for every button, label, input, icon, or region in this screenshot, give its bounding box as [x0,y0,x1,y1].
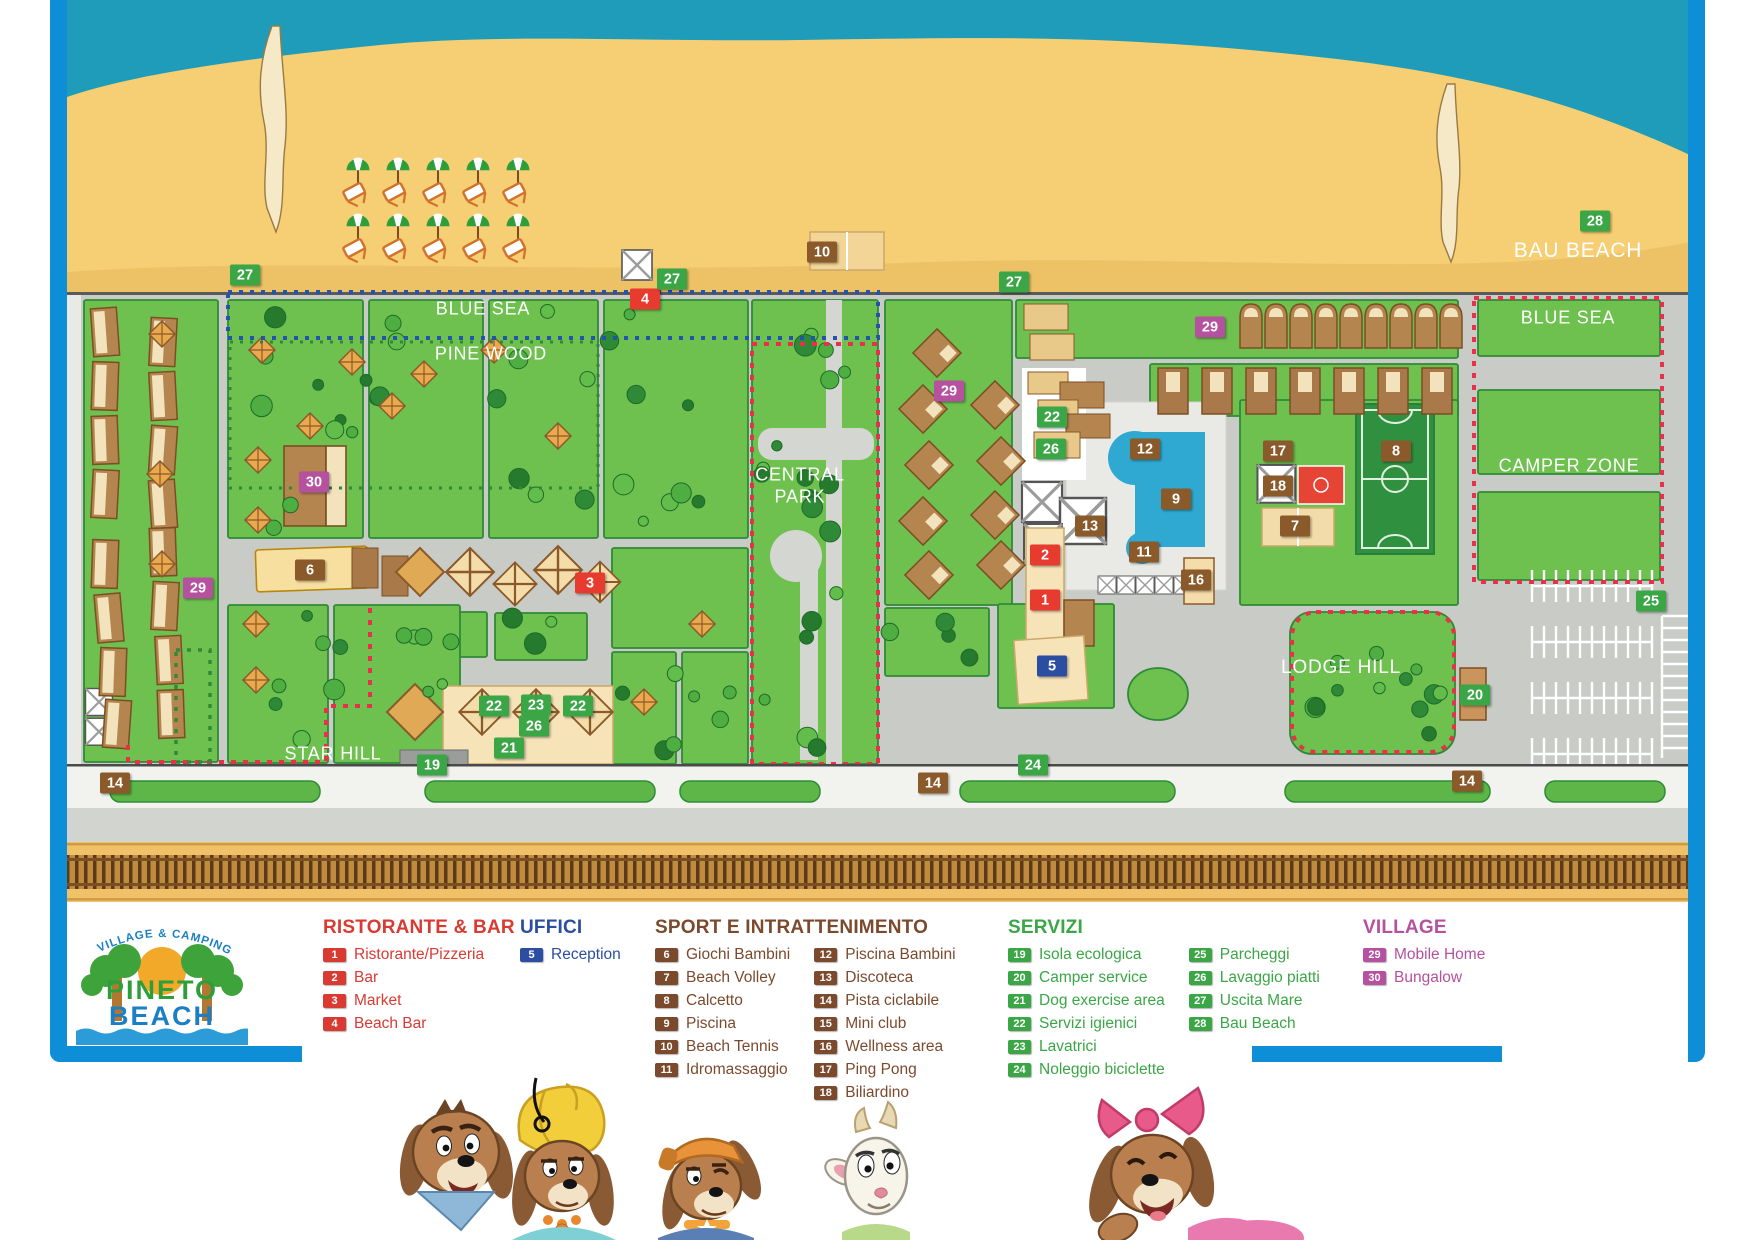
legend-badge-29: 29 [1363,948,1386,962]
legend-item-12: 12Piscina Bambini [814,946,955,964]
legend-item-30: 30Bungalow [1363,969,1485,987]
legend-title: UFFICI [520,917,621,939]
legend-item-5: 5Reception [520,946,621,964]
legend-label: Bungalow [1394,969,1462,987]
legend-title: VILLAGE [1363,917,1485,939]
legend-badge-3: 3 [323,994,346,1008]
mascot-dog-wig [508,1078,618,1240]
legend-title: RISTORANTE & BAR [323,917,515,939]
legend-label: Uscita Mare [1220,992,1303,1010]
legend-badge-30: 30 [1363,971,1386,985]
legend-item-27: 27Uscita Mare [1189,992,1320,1010]
legend-label: Lavaggio piatti [1220,969,1320,987]
legend-item-19: 19Isola ecologica [1008,946,1165,964]
legend-label: Dog exercise area [1039,992,1165,1010]
pineto-beach-map-page: 2742710272829292226129171878131121165306… [0,0,1755,1240]
page-frame-left [50,0,67,1062]
legend-label: Piscina Bambini [845,946,955,964]
legend-badge-20: 20 [1008,971,1031,985]
legend-item-20: 20Camper service [1008,969,1165,987]
legend-label: Ristorante/Pizzeria [354,946,484,964]
legend-item-14: 14Pista ciclabile [814,992,955,1010]
legend-badge-7: 7 [655,971,678,985]
legend-label: Giochi Bambini [686,946,790,964]
legend-label: Pista ciclabile [845,992,939,1010]
legend-item-25: 25Parcheggi [1189,946,1320,964]
legend-badge-5: 5 [520,948,543,962]
legend-badge-25: 25 [1189,948,1212,962]
mascot-dog-bandana [395,1099,518,1230]
legend-badge-14: 14 [814,994,837,1008]
legend-section-village: VILLAGE29Mobile Home30Bungalow [1363,917,1485,992]
legend-label: Beach Volley [686,969,776,987]
legend-item-8: 8Calcetto [655,992,790,1010]
legend-item-29: 29Mobile Home [1363,946,1485,964]
legend-item-6: 6Giochi Bambini [655,946,790,964]
legend-item-3: 3Market [323,992,484,1010]
legend-label: Parcheggi [1220,946,1290,964]
legend-item-2: 2Bar [323,969,484,987]
legend-section-uffici: UFFICI5Reception [520,917,621,969]
legend-badge-6: 6 [655,948,678,962]
legend-item-1: 1Ristorante/Pizzeria [323,946,484,964]
legend-item-21: 21Dog exercise area [1008,992,1165,1010]
page-frame-bottom-left [50,1046,302,1062]
legend-badge-21: 21 [1008,994,1031,1008]
resort-map [0,0,1755,910]
legend-label: Reception [551,946,621,964]
legend-badge-26: 26 [1189,971,1212,985]
legend-badge-1: 1 [323,948,346,962]
legend-badge-12: 12 [814,948,837,962]
page-frame-right [1688,0,1705,1062]
legend-badge-13: 13 [814,971,837,985]
legend-badge-19: 19 [1008,948,1031,962]
legend-label: Camper service [1039,969,1148,987]
legend-badge-2: 2 [323,971,346,985]
mascot-dog-cap [657,1136,768,1240]
page-frame-bottom-right [1252,1046,1502,1062]
legend-label: Isola ecologica [1039,946,1142,964]
legend-label: Discoteca [845,969,913,987]
legend-item-13: 13Discoteca [814,969,955,987]
legend-label: Mobile Home [1394,946,1485,964]
legend-badge-8: 8 [655,994,678,1008]
legend-title: SERVIZI [1008,917,1320,939]
legend-title: SPORT E INTRATTENIMENTO [655,917,956,939]
mascot-dog-bow [1081,1088,1304,1240]
legend-badge-27: 27 [1189,994,1212,1008]
legend-label: Market [354,992,401,1010]
legend-item-26: 26Lavaggio piatti [1189,969,1320,987]
legend-item-7: 7Beach Volley [655,969,790,987]
legend-label: Calcetto [686,992,743,1010]
legend-label: Bar [354,969,378,987]
mascot-goat [821,1102,910,1240]
